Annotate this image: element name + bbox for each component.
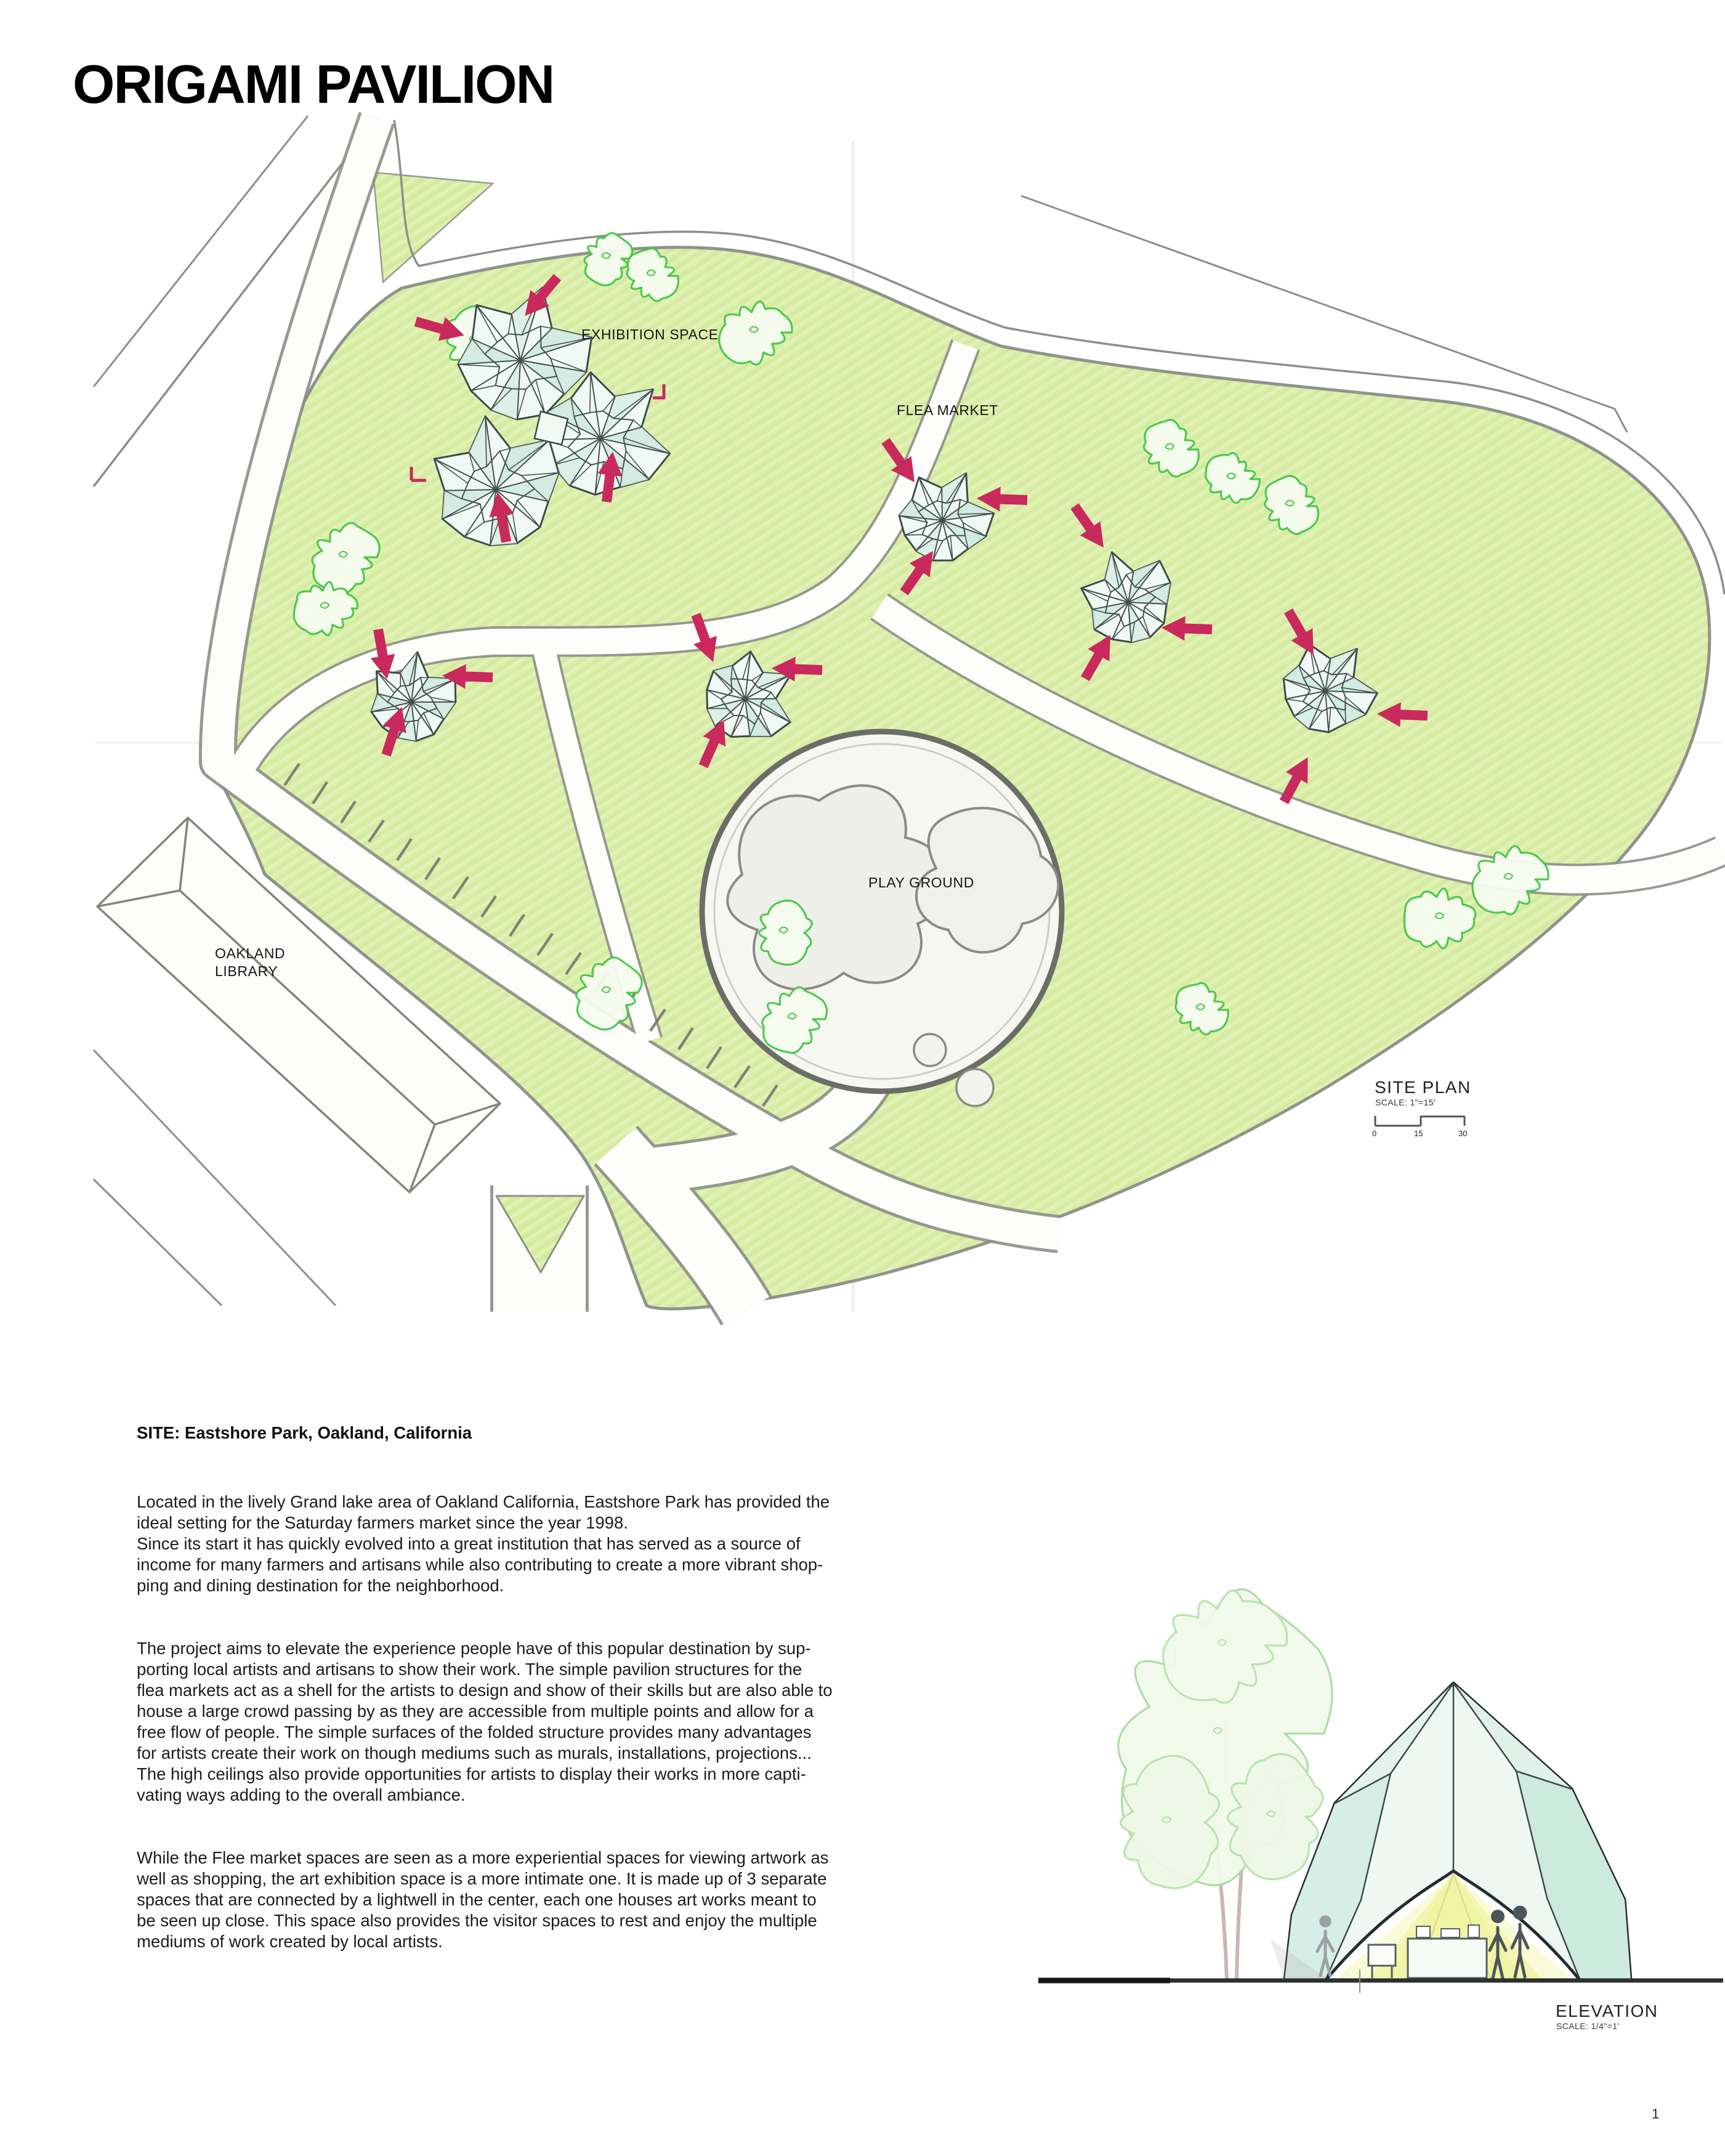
scale-bar-tick-15: 15 xyxy=(1414,1129,1423,1138)
elevation-scale-note: SCALE: 1/4"=1' xyxy=(1556,2021,1619,2031)
label-playground: PLAY GROUND xyxy=(868,874,974,891)
elevation-drawing xyxy=(1038,1589,1723,1993)
label-flea-market: FLEA MARKET xyxy=(897,402,998,419)
board-title: ORIGAMI PAVILION xyxy=(73,53,554,116)
scale-bar-tick-30: 30 xyxy=(1458,1129,1467,1138)
body-paragraph: While the Flee market spaces are seen as… xyxy=(137,1847,999,1952)
scale-bar xyxy=(1375,1116,1464,1126)
page-number: 1 xyxy=(1652,2106,1659,2122)
body-paragraph: Located in the lively Grand lake area of… xyxy=(137,1492,999,1596)
label-exhibition-space: EXHIBITION SPACE xyxy=(581,326,719,343)
body-text-block: SITE: Eastshore Park, Oakland, Californi… xyxy=(137,1402,999,1994)
label-oakland-library: OAKLAND LIBRARY xyxy=(215,945,285,980)
site-plan-scale-note: SCALE: 1"=15' xyxy=(1375,1097,1436,1107)
scale-bar-tick-0: 0 xyxy=(1372,1129,1376,1138)
site-plan-heading: SITE PLAN xyxy=(1375,1078,1471,1097)
presentation-board: ORIGAMI PAVILION EXHIBITION SPACE FLEA M… xyxy=(0,0,1725,2156)
body-heading: SITE: Eastshore Park, Oakland, Californi… xyxy=(137,1423,999,1443)
elevation-heading: ELEVATION xyxy=(1556,2001,1658,2021)
body-paragraph: The project aims to elevate the experien… xyxy=(137,1638,999,1806)
